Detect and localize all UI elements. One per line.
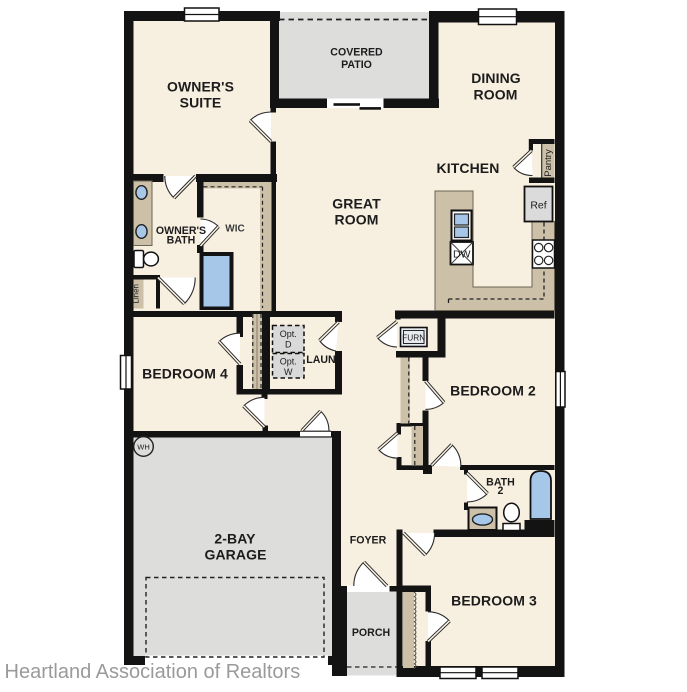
svg-text:D: D (285, 340, 292, 350)
svg-text:LAUN: LAUN (306, 354, 335, 366)
svg-text:SUITE: SUITE (180, 95, 222, 111)
svg-text:GARAGE: GARAGE (204, 547, 266, 563)
svg-text:Heartland Association of Realt: Heartland Association of Realtors (5, 661, 301, 683)
svg-text:DW: DW (453, 249, 471, 261)
svg-text:W: W (284, 367, 293, 377)
svg-text:KITCHEN: KITCHEN (437, 160, 500, 176)
svg-text:GREAT: GREAT (332, 196, 381, 212)
svg-text:ROOM: ROOM (335, 212, 379, 228)
svg-text:FURN: FURN (402, 333, 425, 343)
svg-text:WIC: WIC (225, 224, 244, 235)
svg-text:WH: WH (137, 443, 150, 452)
svg-text:BEDROOM 4: BEDROOM 4 (142, 366, 228, 382)
svg-text:ROOM: ROOM (474, 86, 518, 102)
svg-text:2-BAY: 2-BAY (214, 531, 256, 547)
svg-text:Opt.: Opt. (280, 357, 297, 367)
svg-text:Pantry: Pantry (543, 149, 554, 177)
svg-text:PORCH: PORCH (352, 627, 390, 639)
svg-text:BATH: BATH (167, 234, 196, 246)
svg-text:2: 2 (498, 485, 504, 497)
svg-text:COVERED: COVERED (330, 46, 383, 58)
svg-text:OWNER'S: OWNER'S (167, 79, 234, 95)
svg-text:BEDROOM 2: BEDROOM 2 (450, 383, 536, 399)
svg-text:PATIO: PATIO (341, 59, 372, 71)
svg-text:FOYER: FOYER (350, 535, 387, 547)
svg-text:BEDROOM 3: BEDROOM 3 (451, 593, 537, 609)
svg-text:Opt.: Opt. (280, 329, 297, 339)
svg-text:Linen: Linen (132, 284, 141, 304)
svg-text:DINING: DINING (471, 70, 521, 86)
svg-text:Ref: Ref (530, 200, 546, 212)
